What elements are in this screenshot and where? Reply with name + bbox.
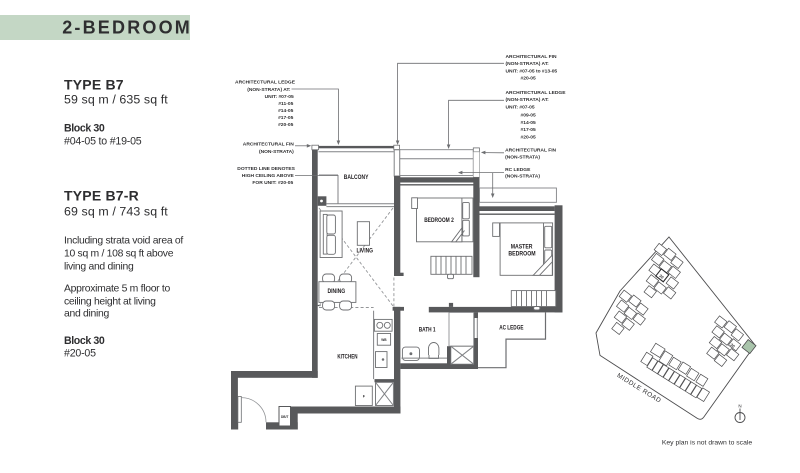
svg-text:BALCONY: BALCONY bbox=[344, 174, 369, 181]
svg-text:#14-05: #14-05 bbox=[521, 120, 537, 126]
svg-text:2-BEDROOM: 2-BEDROOM bbox=[62, 18, 192, 38]
svg-text:and dining: and dining bbox=[64, 309, 109, 320]
svg-text:ARCHITECTURAL LEDGE: ARCHITECTURAL LEDGE bbox=[506, 90, 567, 96]
svg-text:BATH 1: BATH 1 bbox=[419, 326, 436, 333]
svg-text:ARCHITECTURAL FIN: ARCHITECTURAL FIN bbox=[505, 147, 556, 153]
svg-text:ARCHITECTURAL FIN: ARCHITECTURAL FIN bbox=[243, 142, 294, 148]
svg-text:TYPE B7-R: TYPE B7-R bbox=[64, 188, 139, 204]
svg-text:(NON-STRATA): (NON-STRATA) bbox=[505, 154, 540, 160]
svg-text:Including strata void area of: Including strata void area of bbox=[64, 236, 183, 247]
svg-text:Key plan is not drawn to scale: Key plan is not drawn to scale bbox=[662, 440, 753, 447]
svg-text:59 sq m / 635 sq ft: 59 sq m / 635 sq ft bbox=[64, 93, 168, 107]
svg-text:#11-05: #11-05 bbox=[278, 101, 293, 107]
svg-text:#14-05: #14-05 bbox=[278, 108, 294, 114]
svg-text:TYPE B7: TYPE B7 bbox=[64, 77, 124, 93]
svg-text:KITCHEN: KITCHEN bbox=[337, 353, 357, 360]
svg-text:#17-05: #17-05 bbox=[278, 115, 294, 121]
svg-text:ARCHITECTURAL LEDGE: ARCHITECTURAL LEDGE bbox=[235, 80, 296, 86]
svg-text:RC LEDGE: RC LEDGE bbox=[505, 167, 531, 173]
svg-text:#17-05: #17-05 bbox=[521, 127, 537, 133]
svg-text:Block 30: Block 30 bbox=[64, 123, 105, 135]
svg-text:#09-05: #09-05 bbox=[521, 113, 537, 119]
svg-text:Approximate 5 m floor to: Approximate 5 m floor to bbox=[64, 284, 171, 295]
svg-text:HIGH CEILING ABOVE: HIGH CEILING ABOVE bbox=[242, 173, 295, 179]
svg-text:69 sq m / 743 sq ft: 69 sq m / 743 sq ft bbox=[64, 205, 168, 219]
svg-text:#20-05: #20-05 bbox=[64, 348, 96, 360]
svg-text:#20-05: #20-05 bbox=[521, 134, 537, 140]
svg-text:DOTTED LINE DENOTES: DOTTED LINE DENOTES bbox=[237, 166, 295, 172]
svg-text:WB: WB bbox=[381, 338, 387, 342]
svg-text:MASTER: MASTER bbox=[511, 243, 533, 250]
svg-text:(NON-STRATA) AT:: (NON-STRATA) AT: bbox=[506, 61, 550, 67]
svg-text:ARCHITECTURAL FIN: ARCHITECTURAL FIN bbox=[506, 54, 557, 60]
svg-text:(NON-STRATA) AT:: (NON-STRATA) AT: bbox=[247, 87, 291, 93]
svg-text:FOR UNIT: #20-05: FOR UNIT: #20-05 bbox=[252, 180, 293, 186]
svg-text:(NON-STRATA): (NON-STRATA) bbox=[505, 173, 540, 179]
svg-text:#04-05 to #19-05: #04-05 to #19-05 bbox=[64, 136, 142, 148]
svg-text:BEDROOM: BEDROOM bbox=[508, 251, 535, 258]
svg-text:#20-05: #20-05 bbox=[521, 76, 537, 82]
svg-text:LIVING: LIVING bbox=[357, 247, 374, 254]
svg-text:10 sq m / 108 sq ft above: 10 sq m / 108 sq ft above bbox=[64, 248, 174, 259]
svg-text:UNIT: #07-05: UNIT: #07-05 bbox=[506, 104, 535, 110]
svg-text:BEDROOM 2: BEDROOM 2 bbox=[424, 217, 454, 224]
svg-text:ceiling height at living: ceiling height at living bbox=[64, 296, 156, 307]
svg-text:living and dining: living and dining bbox=[64, 261, 134, 272]
svg-text:(NON-STRATA) AT:: (NON-STRATA) AT: bbox=[506, 97, 550, 103]
svg-text:AC LEDGE: AC LEDGE bbox=[499, 324, 524, 331]
svg-text:UNIT: #07-05: UNIT: #07-05 bbox=[265, 94, 294, 100]
svg-text:Block 30: Block 30 bbox=[64, 335, 105, 347]
svg-text:N: N bbox=[738, 404, 741, 409]
svg-text:DINING: DINING bbox=[328, 288, 346, 295]
svg-text:UNIT: #07-05 to #13-05: UNIT: #07-05 to #13-05 bbox=[506, 68, 558, 74]
svg-text:(NON-STRATA): (NON-STRATA) bbox=[259, 149, 294, 155]
svg-text:#20-05: #20-05 bbox=[278, 122, 294, 128]
svg-text:DB/T: DB/T bbox=[281, 415, 288, 419]
